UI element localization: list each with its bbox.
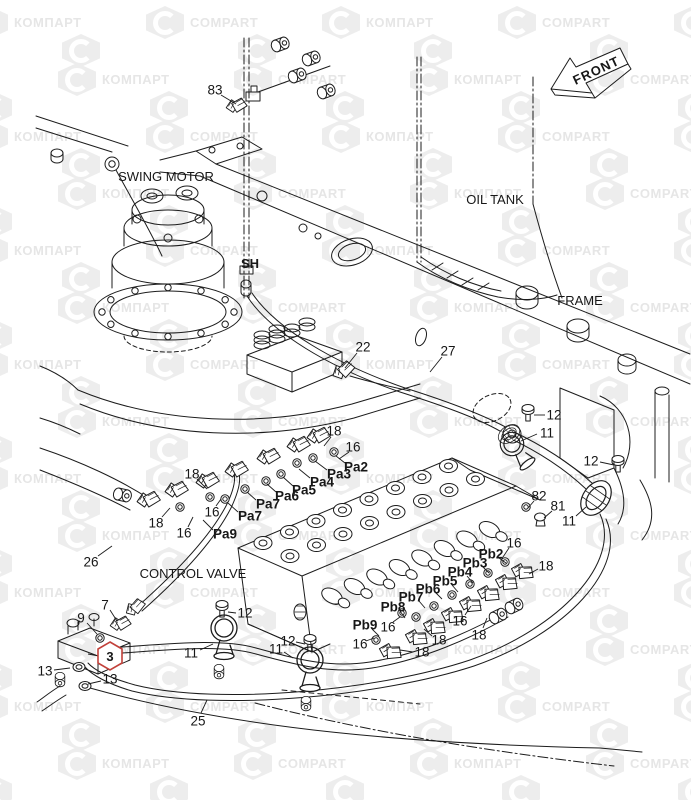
highlight-number: 3 <box>106 649 113 664</box>
label-sh-port: SH <box>241 256 259 271</box>
callout-27: 27 <box>440 344 455 359</box>
frame-and-machinery-art <box>36 36 690 766</box>
callout-18: 18 <box>184 467 199 482</box>
callout-25: 25 <box>190 714 205 729</box>
leader-line <box>247 492 256 500</box>
callout-13: 13 <box>102 672 117 687</box>
callout-16: 16 <box>506 536 521 551</box>
callout-18: 18 <box>326 424 341 439</box>
leader-line <box>200 644 213 650</box>
callout-16: 16 <box>452 614 467 629</box>
callout-18: 18 <box>431 633 446 648</box>
label-frame: FRAME <box>557 293 603 308</box>
callout-13: 13 <box>37 664 52 679</box>
leader-line <box>299 469 310 478</box>
label-oil-tank: OIL TANK <box>466 192 524 207</box>
label-swing-motor: SWING MOTOR <box>118 169 214 184</box>
callout-12: 12 <box>583 454 598 469</box>
leader-line <box>201 700 207 713</box>
callout-18: 18 <box>148 516 163 531</box>
callout-Pb9: Pb9 <box>353 618 378 633</box>
callout-16: 16 <box>352 637 367 652</box>
leader-line <box>98 546 112 556</box>
leader-line <box>284 652 293 658</box>
label-control-valve: CONTROL VALVE <box>140 566 247 581</box>
leader-line <box>400 650 413 652</box>
leader-line <box>110 610 117 621</box>
callout-11: 11 <box>540 426 554 441</box>
callout-16: 16 <box>345 440 360 455</box>
callout-Pa7: Pa7 <box>238 509 262 524</box>
callout-16: 16 <box>204 505 219 520</box>
callout-Pa9: Pa9 <box>213 527 237 542</box>
callout-22: 22 <box>355 340 370 355</box>
leader-line <box>221 95 236 104</box>
callout-81: 81 <box>550 499 565 514</box>
callout-83: 83 <box>207 83 222 98</box>
callout-18: 18 <box>471 628 486 643</box>
hydraulic-piping-diagram: SWING MOTOR OIL TANK FRAME CONTROL VALVE… <box>0 0 691 800</box>
callout-12: 12 <box>237 606 252 621</box>
parts-diagram-page: КОМПАРТCOMPARTКОМПАРТCOMPARTКОМПАРТCOMPA… <box>0 0 691 800</box>
callout-82: 82 <box>531 489 546 504</box>
leader-line <box>54 668 70 670</box>
leader-line <box>228 612 236 613</box>
callout-11: 11 <box>184 646 198 661</box>
callout-16: 16 <box>176 526 191 541</box>
callout-12: 12 <box>546 408 561 423</box>
callout-18: 18 <box>538 559 553 574</box>
callout-18: 18 <box>414 645 429 660</box>
leader-line <box>88 681 101 684</box>
callout-11: 11 <box>562 514 576 529</box>
callout-Pb8: Pb8 <box>381 600 406 615</box>
callout-16: 16 <box>380 620 395 635</box>
leader-line <box>430 357 442 372</box>
leader-line <box>315 461 327 470</box>
leader-line <box>203 520 213 530</box>
callout-11: 11 <box>269 642 283 657</box>
leader-line <box>296 642 305 644</box>
callout-7: 7 <box>101 598 109 613</box>
callout-9: 9 <box>77 611 85 626</box>
highlighted-item-3[interactable]: 3 <box>88 642 122 670</box>
callout-26: 26 <box>83 555 98 570</box>
